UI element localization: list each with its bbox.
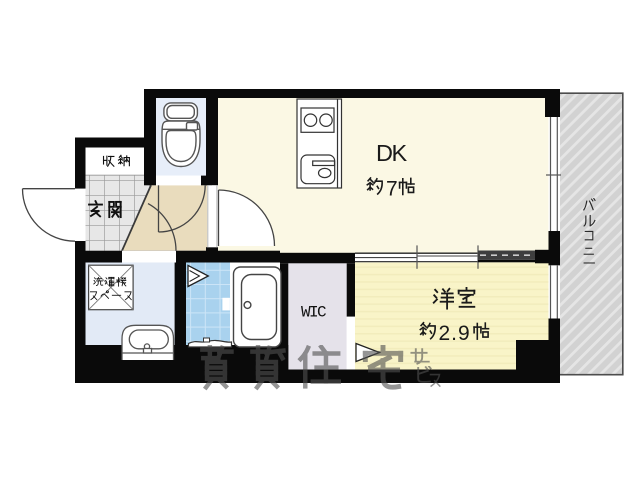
svg-text:DK: DK bbox=[376, 140, 407, 166]
svg-text:2.9: 2.9 bbox=[439, 322, 471, 345]
svg-text:7: 7 bbox=[386, 178, 398, 201]
svg-text:WIC: WIC bbox=[301, 304, 326, 322]
